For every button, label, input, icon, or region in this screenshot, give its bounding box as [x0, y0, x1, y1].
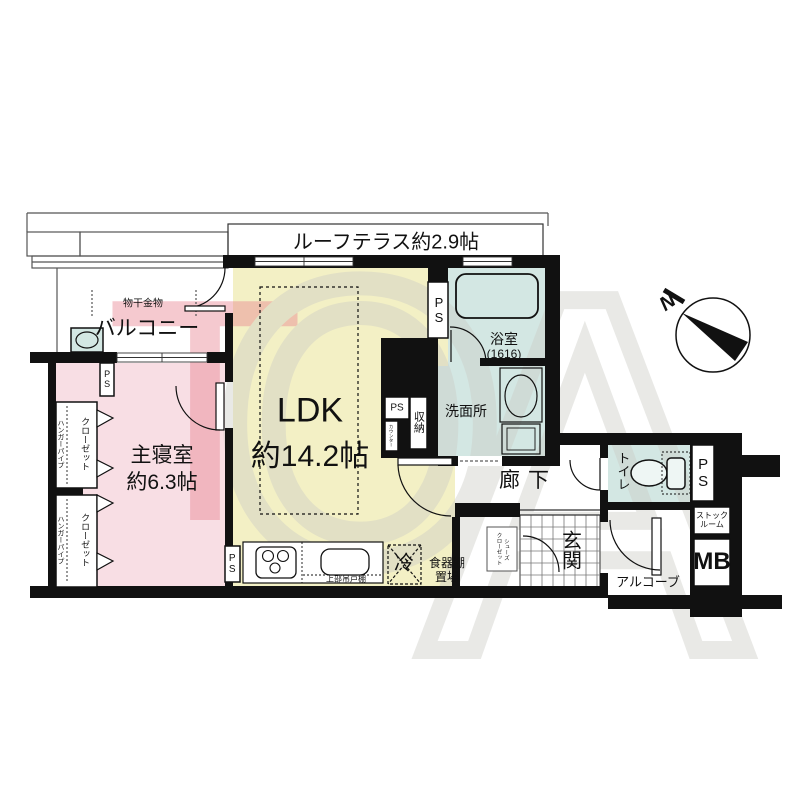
washroom-label: 洗面所 — [445, 403, 487, 419]
stock-room-line2: ルーム — [696, 520, 728, 529]
floor-plan-drawing: T O A — [0, 0, 800, 800]
hallway-label: 廊下 — [499, 469, 557, 493]
laundry-hardware-label: 物干金物 — [123, 298, 163, 310]
closet-label-upper: クローゼット — [80, 417, 90, 471]
toilet-tank — [667, 458, 685, 489]
bathroom-label: 浴室 — [490, 331, 518, 347]
shoe-closet-label: シューズ クローゼット — [495, 533, 509, 566]
storage-label: 収納 — [412, 411, 425, 433]
meter-box-label: MB — [693, 548, 730, 576]
ps-label-balcony: PS — [102, 369, 112, 389]
ldk-door-leaf — [398, 458, 452, 465]
ps-label-storage-row: PS — [390, 402, 403, 414]
toilet-label: トイレ — [615, 452, 630, 491]
ldk-label: LDK — [277, 391, 343, 430]
closet-label-lower: クローゼット — [80, 513, 90, 567]
roof-terrace-label: ルーフテラス約2.9帖 — [293, 232, 479, 255]
alcove-label: アルコーブ — [616, 576, 680, 591]
bedroom-door-leaf — [216, 383, 224, 430]
counter-label: カウンター — [389, 425, 394, 448]
cupboard-label: 食器棚 置場 — [429, 557, 465, 585]
stock-room-line1: ストック — [696, 511, 728, 520]
shoe-closet-line2: クローゼット — [495, 533, 501, 566]
upper-cabinet-label: 上部吊戸棚 — [326, 574, 366, 583]
entrance-label: 玄関 — [558, 530, 581, 570]
bathroom-size-label: (1616) — [487, 348, 522, 362]
hanger-pipe-label-upper: ハンガーパイプ — [56, 420, 64, 469]
bedroom-size-label: 約6.3帖 — [126, 471, 197, 495]
shoe-closet-line1: シューズ — [503, 538, 509, 560]
hanger-pipe-label-lower: ハンガーパイプ — [56, 516, 64, 565]
cupboard-line2: 置場 — [429, 571, 465, 585]
refrigerator-label: 冷 — [394, 553, 414, 576]
bedroom-label: 主寝室 — [131, 444, 194, 468]
ps-label-kitchen: PS — [226, 553, 238, 575]
ps-label-toilet: PS — [694, 456, 711, 490]
entrance-door-leaf — [652, 518, 661, 575]
cupboard-line1: 食器棚 — [429, 557, 465, 571]
floor-plan: T O A — [0, 0, 800, 800]
balcony-door-leaf — [185, 306, 225, 311]
ps-label-ldk: PS — [431, 295, 446, 325]
balcony-label: バルコニー — [95, 317, 200, 341]
stock-room-label: ストック ルーム — [696, 511, 728, 529]
ldk-size-label: 約14.2帖 — [251, 440, 369, 475]
